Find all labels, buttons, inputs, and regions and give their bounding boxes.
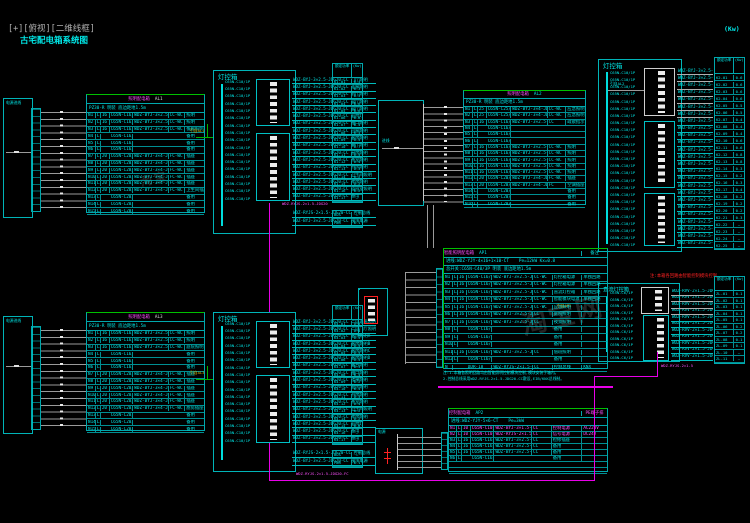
circuit-row: WDZ-BYJ-3×2.5-JDG20-CC 备用: [677, 241, 713, 248]
breaker-label: C65N-C10/1P: [610, 161, 643, 168]
breaker-label: C65N-C10/1P: [225, 341, 256, 348]
schedule-header: 控制配电箱 AP2 PE端子排: [449, 409, 607, 418]
relay-contacts: [270, 136, 277, 198]
mini-row: K1-150.2: [333, 180, 362, 187]
busbar: [606, 72, 608, 244]
divider-line: [438, 386, 613, 388]
mini-row: K1-110.5: [333, 151, 362, 158]
mini-row: K1-160.2: [333, 187, 362, 194]
mini-row: K4-050.5: [333, 349, 362, 356]
breaker-label: C65N-C10/1P: [225, 319, 256, 326]
incoming-spec: 进线:WDZ-YJY-5×6-CT: [451, 419, 498, 424]
circuit-row: WDZ-BYJ-3×2.5-JDG20-CC 备用: [677, 226, 713, 233]
table-row: N11L220C65N-C20/1PWDZ-BYJ-3×4-JDG25FC·WC…: [87, 399, 204, 406]
table-row: N6L3C65N-C16/1P备用: [87, 365, 204, 372]
outgoing-circuits: WDZ-BYJ-3×2.5-JDG20-CC 大殿照明AWDZ-BYJ-3×2.…: [677, 68, 713, 248]
terminal-strip: [31, 326, 41, 430]
breaker-label: C65N-C10/1P: [225, 128, 256, 135]
circuit-row: WDZ-BYJ-3×2.5-JDG20-CC 壁灯: [677, 169, 713, 176]
incoming-cabinet-label: 电源进线: [6, 101, 21, 106]
incoming-cabinet-label: 进线: [382, 139, 390, 144]
breaker-symbols-column: [60, 329, 63, 429]
terminal-strip: [436, 268, 443, 368]
circuit-wires: [405, 272, 436, 368]
schedule-note-2: 2.控制总线采用WDZ-RYJS-2×1.5-JDG20-CC敷设,EIB/KN…: [443, 377, 564, 382]
mini-row: K1-070.4: [333, 122, 362, 129]
mini-row: K2-190.2: [715, 200, 744, 207]
schedule-incoming-row: 进线:WDZ-YJY-4×16+1×10-CT Pe=12kW Kx=0.8: [444, 258, 607, 266]
breaker-label: C65N-C10/1P: [610, 97, 643, 104]
table-row: N15L3C65N-C20/1P备用: [87, 208, 204, 215]
panel-title: 智能照明配电箱: [444, 251, 474, 256]
mini-table-header: 额定功率 (Kw): [715, 58, 744, 74]
power-spec: Pe=3kW: [508, 419, 524, 424]
mini-row: K1-060.8: [333, 114, 362, 121]
panel-title: 控制配电箱: [449, 411, 470, 416]
control-bus-line: [269, 443, 270, 480]
mini-row: K2-040.6: [715, 95, 744, 102]
panel-code: AL3: [155, 315, 163, 320]
breaker-symbols-column: [60, 111, 63, 211]
mini-row: K1-090.5: [333, 136, 362, 143]
cad-canvas: [+][俯视][二维线框] 古宅配电箱系统图 (Kw) 淘宝网 淘宝 电源进线 …: [0, 0, 750, 523]
table-row: N9L320C65N-C20/1PWDZ-BYJ-3×4-JDG25FC·WC插…: [87, 385, 204, 392]
breaker-label: C65N-C10/1P: [610, 219, 643, 226]
relay-module-strip: [256, 133, 290, 201]
breaker-labels: C65N-C10/1PC65N-C10/1PC65N-C10/1PC65N-C1…: [225, 319, 256, 443]
relay-contacts: [368, 299, 375, 321]
schedule-spec-row: PZ30-R 明装 底边距地1.5m: [87, 322, 204, 331]
schedule-spec-row: PZ30-R 明装 底边距地1.5m: [87, 104, 204, 113]
mini-row: K4-070.3: [333, 364, 362, 371]
circuit-row: WDZ-BYJ-3×2.5-JDG20-CC 大殿照明B: [677, 75, 713, 82]
mini-row: K1-020.3: [333, 85, 362, 92]
schedule-header: 照明配电箱 AL3: [87, 313, 204, 322]
table-row: N8L2C65N-C16/1P备用: [444, 327, 607, 335]
circuit-row: WDZ-BYJ-3×2.5-JDG20-CC 回廊照明B: [677, 126, 713, 133]
mini-row: K2-130.8: [715, 158, 744, 165]
table-row: N14L2C65N-C20/1P备用: [87, 419, 204, 426]
breaker-label: C65N-C10/1P: [225, 84, 256, 91]
breaker-label: C65N-C10/1P: [610, 241, 643, 248]
schedule-header: 智能照明配电箱 AP1 备注: [444, 249, 607, 258]
mini-row: K4-17—: [333, 437, 362, 444]
incoming-cabinet-al3: 电源进线: [3, 316, 33, 434]
table-row: N11L220C65N-C20/1PWDZ-BYJ-3×4-JDG25FC·WC…: [87, 181, 204, 188]
incoming-cabinet-label: 电源进线: [6, 319, 21, 324]
main-switch-spec: 总开关:C65N-C40/3P 明装 底边距地1.5m: [446, 267, 531, 272]
table-row: N12L320C65N-C20/1PWDZ-BYJ-3×4-JDG25FC·WC…: [87, 188, 204, 195]
schedule-spec-row: PZ30-R 明装 底边距地1.5m: [464, 99, 585, 107]
mini-row: K1-080.4: [333, 129, 362, 136]
table-row: N15L3C65N-C20/1P备用: [87, 426, 204, 433]
panel-schedule-al3: 照明配电箱 AL3 PZ30-R 明装 底边距地1.5m N1L116C65N-…: [86, 312, 205, 431]
mini-row: K2-060.5: [715, 109, 744, 116]
relay-contacts: [658, 196, 665, 243]
breaker-label: C65N-C10/1P: [225, 334, 256, 341]
circuit-row: WDZ-BYJ-3×2.5-JDG20-CC 庭院照明B: [677, 140, 713, 147]
relay-contacts: [655, 290, 662, 311]
mini-row: K2-120.8: [715, 151, 744, 158]
breaker-symbol: [394, 147, 399, 149]
breaker-label: C65N-C10/1P: [610, 140, 643, 147]
mini-row: PWR0.1: [333, 459, 362, 467]
incoming-cabinet-al2: 进线: [378, 100, 424, 206]
panel-schedule-ap2: 控制配电箱 AP2 PE端子排 进线:WDZ-YJY-5×6-CT Pe=3kW…: [448, 408, 608, 472]
schedule-note-1: 注:1.本箱各照明回路均由智能照明控制模块控制,模块安装于箱内。: [443, 371, 558, 376]
mini-table-rows: K2-010.6K2-020.6K2-030.6K2-040.6K2-050.5…: [715, 74, 744, 249]
mini-table-rows: ZL-010.1ZL-020.1ZL-030.1ZL-040.1ZL-050.1…: [715, 291, 744, 363]
breaker-symbols-column: [444, 106, 447, 202]
table-row: N12L320C65N-C20/1PWDZ-BYJ-3×4-JDG25FC·WC…: [87, 406, 204, 413]
relay-module-strip: [256, 79, 290, 126]
breaker-label: C65N-C10/1P: [610, 118, 643, 125]
mini-row: K2-160.3: [715, 179, 744, 186]
mini-row: K4-120.4: [333, 400, 362, 407]
panel-code: AP1: [479, 251, 487, 256]
mini-row: K2-020.6: [715, 81, 744, 88]
bus-link-line: [427, 205, 428, 248]
circuit-row: WDZ-BYJ-3×2.5-JDG20-CC 备用: [677, 233, 713, 240]
feed-label: 引自AL3: [190, 371, 204, 376]
breaker-label: C65N-C10/1P: [225, 150, 256, 157]
table-row: N7L120C65N-C20/1PWDZ-BYJ-3×4-JDG25FC·WC插…: [87, 154, 204, 161]
breaker-label: C65N-C10/1P: [225, 106, 256, 113]
breaker-label: C65N-C10/1P: [225, 407, 256, 414]
surge-arrester-symbol: [387, 448, 388, 464]
relay-contacts: [270, 324, 277, 365]
table-row: N3L316C65N-C16/1PWDZ-BYJ-3×2.5-JDG20CC·W…: [444, 289, 607, 297]
relay-module-strip-white: [644, 68, 675, 116]
breaker-label: C65N-C10/1P: [225, 385, 256, 392]
mini-row: K1-120.4: [333, 158, 362, 165]
breaker-label: C65N-C10/1P: [225, 377, 256, 384]
feed-label: 引自AL1: [190, 129, 204, 134]
breaker-label: C65N-C10/1P: [225, 186, 256, 193]
feed-label: 引自AL2: [610, 82, 624, 87]
power-mini-table: 额定功率 (Kw) K1-010.4K1-020.3K1-030.5K1-040…: [332, 63, 363, 203]
mini-table-rows: K4-010.3K4-020.4K4-030.5K4-040.5K4-050.5…: [333, 320, 362, 444]
circuit-row: WDZ-BYJ-3×2.5-JDG20-CC 门楼照明: [677, 183, 713, 190]
power-spec: Pe=12kW Kx=0.8: [519, 259, 555, 264]
circuit-row: WDZ-BYJ-3×2.5-JDG20-CC 草坪灯: [677, 161, 713, 168]
table-row: N6L3C65N-C16/1P备用: [87, 147, 204, 154]
breaker-label: C65N-C10/1P: [225, 363, 256, 370]
relay-contacts: [270, 82, 277, 123]
table-row: N13L1C65N-C20/1P备用: [87, 413, 204, 420]
table-row: N7L120C65N-C20/1PWDZ-BYJ-3×4-JDG25FC·WC插…: [87, 372, 204, 379]
mini-row: K1-050.6: [333, 107, 362, 114]
table-row: N9L3C65N-C16/1P备用: [444, 334, 607, 342]
breaker-label: C65N-C10/1P: [225, 348, 256, 355]
circuit-row: WDZ-BYJ-3×2.5-JDG20-CC 偏殿照明B: [677, 104, 713, 111]
table-row: N5L216C65N-C16/1PWDZ-BYJ-3×2.5-JDG20CC·W…: [444, 304, 607, 312]
surge-arrester-bar: [384, 452, 391, 453]
mini-row: K2-24—: [715, 235, 744, 242]
panel-spec: PZ30-R 明装 底边距地1.5m: [89, 324, 146, 329]
circuit-row: WDZ-BYJ-3×2.5-JDG20-CC 回廊照明A: [677, 118, 713, 125]
relay-contacts: [658, 71, 665, 113]
mini-row: K2-080.4: [715, 123, 744, 130]
mini-table-rows: K1-010.4K1-020.3K1-030.5K1-040.6K1-050.6…: [333, 78, 362, 202]
table-row: N4L116C65N-C16/1PWDZ-BYJ-3×2.5-JDG20CC·W…: [444, 297, 607, 305]
unit-label: (Kw): [724, 26, 740, 33]
table-row: N3L316C65N-C16/1PWDZ-BYJ-3×2.5-JDG20CC·W…: [87, 345, 204, 352]
table-row: N10L1C65N-C16/1P备用: [444, 342, 607, 350]
drawing-title: 古宅配电箱系统图: [20, 36, 88, 46]
relay-contacts: [657, 318, 664, 358]
table-row: N5L2C65N-C16/1P备用: [87, 140, 204, 147]
breaker-label: C65N-C10/1P: [225, 165, 256, 172]
terminal-strip: [441, 432, 448, 470]
panel-code: AL1: [155, 97, 163, 102]
power-mini-table-extra: BUS—PWR0.1: [332, 450, 363, 468]
breaker-label: C65N-C10/1P: [610, 111, 643, 118]
breaker-label: C65N-C10/1P: [610, 154, 643, 161]
breaker-label: C65N-C10/1P: [610, 126, 643, 133]
busbar: [221, 326, 223, 460]
schedule-rows: N1L110C65N-C10/1PWDZ-BYJ-3×1.5-JDG20CC控制…: [449, 426, 607, 474]
panel-title: 照明配电箱: [128, 315, 149, 320]
relay-module-strip: [256, 321, 290, 368]
mini-row: K1-130.3: [333, 166, 362, 173]
circuit-row: WDZ-BYJ-3×2.5-JDG20-CC 夜景照明B: [677, 154, 713, 161]
highlighted-relay-module: [364, 296, 378, 324]
table-row: N11L216C65N-C16/1PWDZ-BYJ-3×2.5-JDG20CC值…: [444, 349, 607, 357]
control-bus-label: WDZ-RYJS-2×1.5-JDG20-FC: [296, 472, 349, 477]
table-row: N16L1C65N-C20/1P备用: [464, 201, 585, 207]
table-row: N14L2C65N-C20/1P备用: [87, 201, 204, 208]
mini-row: K2-140.3: [715, 165, 744, 172]
breaker-label: C65N-C10/1P: [610, 133, 643, 140]
breaker-label: C65N-C10/1P: [610, 212, 643, 219]
terminal-strip: [31, 108, 41, 212]
relay-module-strip: [644, 121, 675, 188]
mini-row: K2-100.6: [715, 137, 744, 144]
table-row: N2L216C65N-C16/1PWDZ-BYJ-3×2.5-JDG20CC·W…: [87, 120, 204, 127]
mini-row: K2-050.5: [715, 102, 744, 109]
mini-row: K1-030.5: [333, 93, 362, 100]
breaker-label: C65N-C10/1P: [225, 194, 256, 201]
mini-row: K2-090.4: [715, 130, 744, 137]
mini-row: ZL-11—: [715, 356, 744, 363]
mini-row: PWR0.1: [333, 219, 362, 227]
breaker-labels: C65N-C10/1PC65N-C10/1PC65N-C10/1PC65N-C1…: [610, 68, 643, 248]
breaker-symbol: [14, 151, 19, 153]
breaker-label: C65N-C10/1P: [225, 99, 256, 106]
mini-row: K4-150.8: [333, 422, 362, 429]
breaker-label: C65N-C10/1P: [225, 172, 256, 179]
schedule-incoming-row: 进线:WDZ-YJY-5×6-CT Pe=3kW: [449, 418, 607, 426]
panel-schedule-al1: 照明配电箱 AL1 PZ30-R 明装 底边距地1.5m N1L116C65N-…: [86, 94, 205, 213]
mini-row: K4-130.2: [333, 408, 362, 415]
breaker-label: C65N-C10/1P: [225, 392, 256, 399]
mini-row: K4-060.5: [333, 356, 362, 363]
relay-contacts: [658, 124, 665, 185]
breaker-label: C65N-C10/1P: [610, 104, 643, 111]
table-row: N10L120C65N-C20/1PWDZ-BYJ-3×4-JDG25FC·WC…: [87, 174, 204, 181]
panel-code: AL2: [534, 92, 542, 97]
breaker-label: C65N-C10/1P: [225, 179, 256, 186]
table-row: N1L116C65N-C16/1PWDZ-BYJ-3×2.5-JDG20CC·W…: [87, 331, 204, 338]
relay-module-strip: [643, 315, 669, 361]
table-row: N5L2C65N-C16/1P备用: [87, 358, 204, 365]
table-row: [449, 468, 607, 474]
relay-module-strip-white: [641, 287, 669, 314]
table-row: N4L1C65N-C16/1P备用: [87, 133, 204, 140]
breaker-label: C65N-C6/1P: [610, 354, 640, 361]
circuit-row: WDZ-BYJ-3×2.5-JDG20-CC 大殿照明C: [677, 82, 713, 89]
circuit-row: WDZ-BYJ-3×2.5-JDG20-CC 大殿照明A: [677, 68, 713, 75]
power-mini-table: 额定功率 (Kw) K2-010.6K2-020.6K2-030.6K2-040…: [714, 57, 745, 250]
panel-spec: PZ30-R 明装 底边距地1.5m: [89, 106, 146, 111]
breaker-label: C65N-C10/1P: [610, 68, 643, 75]
feed-line: [207, 366, 208, 380]
mini-table-rows: BUS—PWR0.1: [333, 211, 362, 227]
mini-table-header: 额定功率 (Kw): [715, 277, 744, 291]
spacer: [358, 288, 360, 290]
circuit-row: WDZ-BYJ-3×2.5-JDG20-CC 备用: [677, 219, 713, 226]
schedule-header: 照明配电箱 AL1: [87, 95, 204, 104]
breaker-label: C65N-C10/1P: [225, 421, 256, 428]
mini-row: K2-180.2: [715, 193, 744, 200]
breaker-label: C65N-C10/1P: [225, 326, 256, 333]
mini-row: K2-150.2: [715, 172, 744, 179]
mini-table-header: 额定功率 (Kw): [333, 64, 362, 78]
circuit-row: WDZ-BYJ-3×2.5-JDG20-CC 夜景照明A: [677, 147, 713, 154]
circuit-wires: [41, 112, 86, 212]
table-row: N6L316C65N-C16/1PWDZ-BYJ-3×2.5-JDG20CC庭院…: [444, 312, 607, 320]
table-row: N1L116C65N-C16/1PWDZ-BYJ-3×2.5-JDG20CC·W…: [444, 274, 607, 282]
breaker-label: C65N-C10/1P: [225, 436, 256, 443]
breaker-label: C65N-C10/1P: [610, 169, 643, 176]
control-bus-label: WDZ-RYJS-2×1.5-JDG20: [282, 202, 328, 207]
breaker-label: C65N-C10/1P: [610, 147, 643, 154]
panel-code: AP2: [475, 411, 483, 416]
feed-line: [207, 124, 208, 138]
breaker-label: C65N-C10/1P: [225, 113, 256, 120]
table-row: N1L116C65N-C16/1PWDZ-BYJ-3×2.5-JDG20CC·W…: [87, 113, 204, 120]
surge-arrester-bar: [384, 458, 391, 459]
mini-row: K2-170.4: [715, 186, 744, 193]
busbar: [221, 84, 223, 226]
schedule-rows: N1L116C65N-C16/1PWDZ-BYJ-3×2.5-JDG20CC·W…: [444, 274, 607, 372]
panel-schedule-al2: 照明配电箱 AL2 PZ30-R 明装 底边距地1.5m N1L125C65N-…: [463, 90, 586, 205]
panel-title: 照明配电箱: [507, 92, 528, 97]
panel-title: 照明配电箱: [128, 97, 149, 102]
circuit-row: WDZ-BYJ-3×2.5-JDG20-CC 檐口照明: [677, 111, 713, 118]
panel-schedule-ap: 智能照明配电箱 AP1 备注 进线:WDZ-YJY-4×16+1×10-CT P…: [443, 248, 608, 369]
table-row: N12L3C65N-C16/1P备用: [444, 357, 607, 365]
circuit-row: WDZ-BYJ-3×2.5-JDG20-CC 廊灯: [677, 176, 713, 183]
breaker-label: C65N-C10/1P: [610, 183, 643, 190]
mini-row: BUS—: [333, 211, 362, 219]
breaker-label: C65N-C10/1P: [225, 370, 256, 377]
remark-col-header: 备注: [581, 251, 607, 256]
mini-row: K4-16—: [333, 429, 362, 436]
mini-row: K2-030.6: [715, 88, 744, 95]
mini-row: K1-010.4: [333, 78, 362, 85]
mini-row: K2-210.3: [715, 214, 744, 221]
table-row: N10L120C65N-C20/1PWDZ-BYJ-3×4-JDG25FC·WC…: [87, 392, 204, 399]
control-bus-line: [269, 203, 270, 312]
control-bus-label: WDZ-RYJS-2×1.5: [661, 364, 693, 369]
mini-row: BUS—: [333, 451, 362, 459]
breaker-label: C65N-C10/1P: [610, 205, 643, 212]
mini-row: K1-040.6: [333, 100, 362, 107]
breaker-labels: C65N-C6/1PC65N-C6/1PC65N-C6/1PC65N-C6/1P…: [610, 289, 640, 361]
table-row: N4L1C65N-C16/1P备用: [87, 351, 204, 358]
mini-row: K4-100.4: [333, 386, 362, 393]
breaker-label: C65N-C10/1P: [225, 143, 256, 150]
circuit-row: WDZ-BYJ-3×2.5-JDG20-CC 庭院照明A: [677, 133, 713, 140]
panel-spec: PZ30-R 明装 底边距地1.5m: [466, 100, 523, 105]
mini-row: K1-140.2: [333, 173, 362, 180]
table-row: N2L216C65N-C16/1PWDZ-BYJ-3×2.5-JDG20CC·W…: [444, 282, 607, 290]
schedule-rows: N1L125C65N-C25/1PWDZ-BYJ-3×4-JDG25CC·WC应…: [464, 107, 585, 208]
table-row: N7L116C65N-C16/1PWDZ-BYJ-3×2.5-JDG20CC夜景…: [444, 319, 607, 327]
mini-table-rows: BUS—PWR0.1: [333, 451, 362, 467]
schedule-main-switch-row: 总开关:C65N-C40/3P 明装 底边距地1.5m: [444, 266, 607, 274]
schedule-header: 照明配电箱 AL2: [464, 91, 585, 99]
breaker-label: C65N-C10/1P: [225, 92, 256, 99]
schedule-rows: N1L116C65N-C16/1PWDZ-BYJ-3×2.5-JDG20CC·W…: [87, 113, 204, 215]
relay-module-strip: [256, 375, 290, 443]
control-bus-line: [657, 352, 658, 377]
viewport-controls[interactable]: [+][俯视][二维线框]: [8, 24, 95, 34]
mini-row: K2-22—: [715, 221, 744, 228]
circuit-row: WDZ-BYJ-3×2.5-JDG20-CC 值班照明: [677, 190, 713, 197]
breaker-label: C65N-C10/1P: [225, 157, 256, 164]
table-row: N8L220C65N-C20/1PWDZ-BYJ-3×4-JDG25FC·WC插…: [87, 161, 204, 168]
breaker-label: C65N-C10/1P: [225, 399, 256, 406]
circuit-row: WDZ-BYJ-3×2.5-JDG20-CC 偏殿照明A: [677, 97, 713, 104]
mini-row: K4-110.3: [333, 393, 362, 400]
table-row: N8L220C65N-C20/1PWDZ-BYJ-3×4-JDG25FC·WC插…: [87, 379, 204, 386]
circuit-wires: [398, 437, 441, 470]
circuit-row: WDZ-BYJ-3×2.5-JDG20-CC 大殿照明D: [677, 90, 713, 97]
circuit-wires: [41, 330, 86, 430]
mini-row: K1-100.7: [333, 144, 362, 151]
incoming-cabinet-al1: 电源进线: [3, 98, 33, 218]
mini-row: K2-070.4: [715, 116, 744, 123]
breaker-label: C65N-C10/1P: [225, 77, 256, 84]
feeder-riser: [405, 272, 406, 364]
circuit-row: WDZ-BYJ-3×2.5-JDG20-CC 卫生间照明: [677, 205, 713, 212]
breaker-label: C65N-C10/1P: [225, 428, 256, 435]
table-row: N13L1C65N-C20/1P备用: [87, 195, 204, 202]
relay-contacts: [270, 378, 277, 440]
breaker-label: C65N-C10/1P: [225, 355, 256, 362]
outgoing-circuits: WDZ-RVV-2×1.5-JDG20-CC LED灯带AWDZ-RVV-2×1…: [671, 289, 713, 361]
mini-row: K2-25—: [715, 242, 744, 249]
bus-link-line: [433, 205, 434, 248]
incoming-feeder-line: [382, 148, 424, 149]
breaker-label: C65N-C10/1P: [610, 197, 643, 204]
control-bus-line: [269, 480, 594, 481]
control-bus-line: [594, 376, 657, 377]
circuit-row: WDZ-BYJ-3×2.5-JDG20-CC 库房照明: [677, 197, 713, 204]
mini-row: K2-200.2: [715, 207, 744, 214]
feed-line: [196, 137, 213, 138]
breaker-label: C65N-C10/1P: [610, 233, 643, 240]
mini-row: K2-110.6: [715, 144, 744, 151]
breaker-label: C65N-C10/1P: [225, 414, 256, 421]
table-row: N2L216C65N-C16/1PWDZ-BYJ-3×2.5-JDG20CC·W…: [87, 338, 204, 345]
incoming-spec: 进线:WDZ-YJY-4×16+1×10-CT: [446, 259, 509, 264]
relay-module-strip: [644, 193, 675, 246]
table-row: N3L316C65N-C16/1PWDZ-BYJ-3×2.5-JDG20CC·W…: [87, 127, 204, 134]
